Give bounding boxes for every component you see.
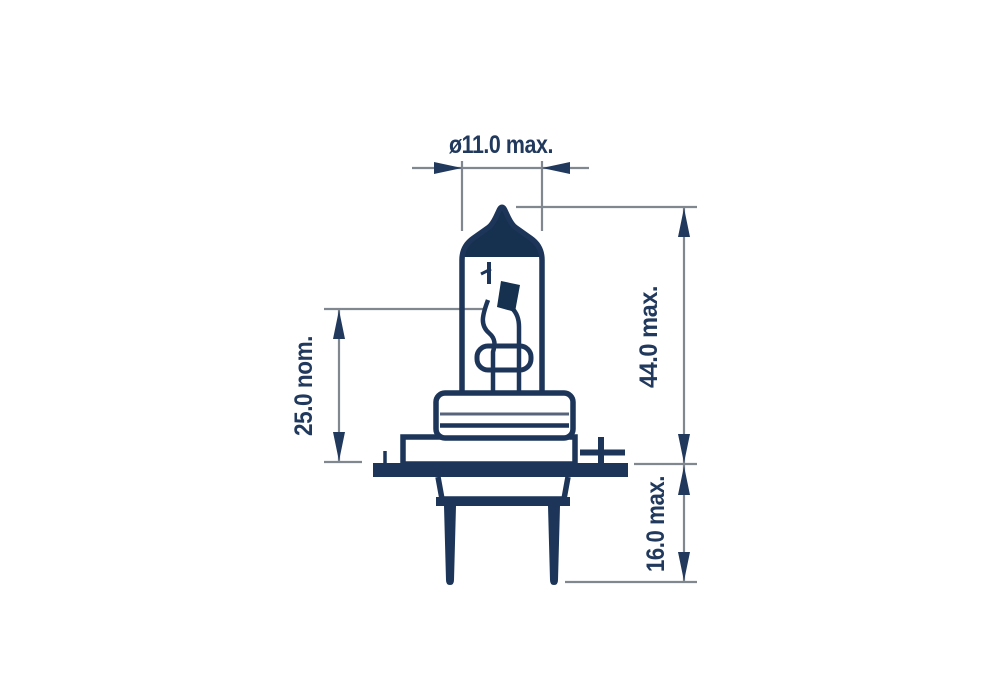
arrowhead-icon xyxy=(678,466,690,495)
arrowhead-icon xyxy=(678,552,690,581)
arrowhead-icon xyxy=(678,208,690,237)
base-flange xyxy=(373,463,628,477)
diameter-label: ø11.0 max. xyxy=(449,131,553,159)
bulb-internals xyxy=(477,262,531,395)
pin-right xyxy=(548,506,560,585)
arrowhead-icon xyxy=(678,434,690,463)
base-step xyxy=(403,437,575,464)
filament-coil xyxy=(497,281,520,312)
bulb-technical-drawing: ø11.0 max. 44.0 max. 16.0 max. 25.0 nom. xyxy=(0,0,1000,700)
pin-depth-label: 16.0 max. xyxy=(642,476,670,572)
lead-wire-right xyxy=(511,307,519,395)
arrowhead-icon xyxy=(333,310,345,339)
filament-shield xyxy=(477,346,531,370)
arrowhead-icon xyxy=(542,162,570,174)
arrowhead-icon xyxy=(434,162,462,174)
base-skirt xyxy=(438,477,568,499)
light-center-label: 25.0 nom. xyxy=(290,336,318,436)
base-skirt-bottom xyxy=(436,497,570,506)
pin-left xyxy=(444,506,456,585)
dim-pin-depth: 16.0 max. xyxy=(565,464,697,582)
bulb-base xyxy=(373,393,628,585)
arrowhead-icon xyxy=(333,432,345,461)
overall-length-label: 44.0 max. xyxy=(635,286,663,388)
glass-dome-fill xyxy=(462,207,542,257)
